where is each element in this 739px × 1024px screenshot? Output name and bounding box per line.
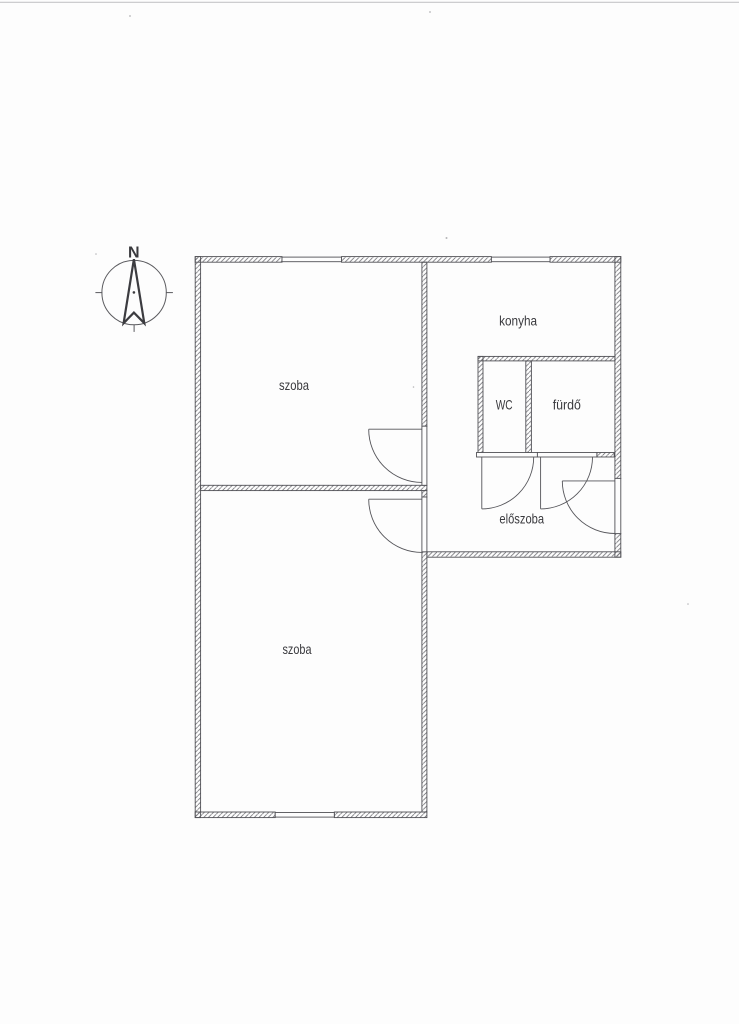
svg-text:fürdő: fürdő bbox=[553, 397, 581, 413]
svg-text:szoba: szoba bbox=[283, 641, 312, 657]
svg-text:konyha: konyha bbox=[499, 312, 537, 328]
svg-text:N: N bbox=[128, 244, 140, 261]
svg-text:szoba: szoba bbox=[279, 377, 309, 393]
svg-text:előszoba: előszoba bbox=[499, 510, 544, 526]
svg-text:WC: WC bbox=[496, 397, 513, 413]
